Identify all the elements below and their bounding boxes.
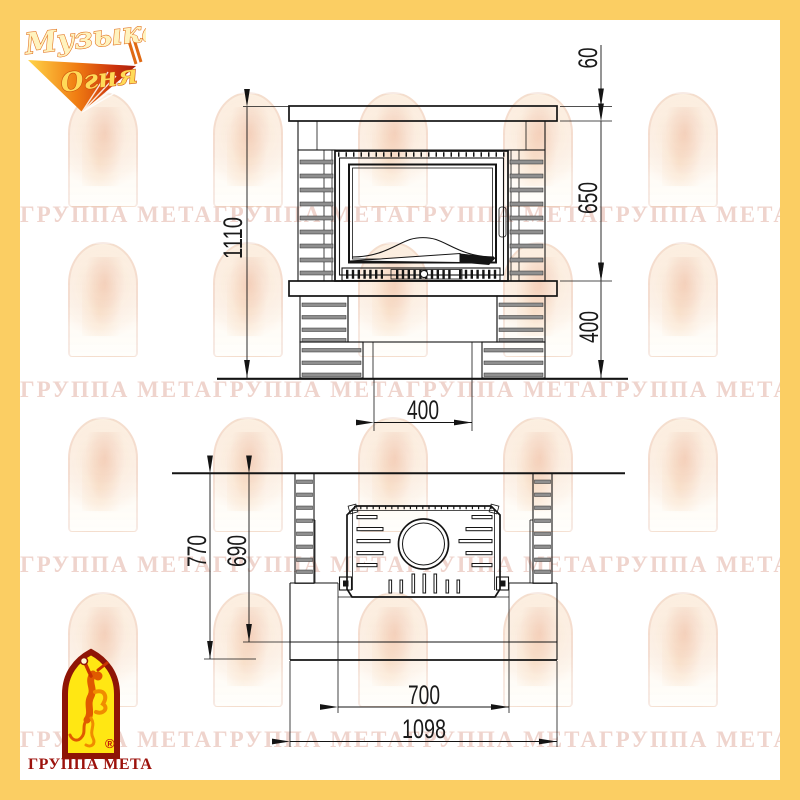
dim-total-width-label: 1098 (402, 714, 446, 744)
dim-niche-width-label: 400 (407, 395, 439, 425)
dim-total-height-label: 1110 (218, 217, 248, 259)
registered-mark: ® (105, 736, 115, 751)
plan-view: 770 690 700 1098 (172, 473, 625, 747)
base-front (300, 296, 545, 378)
firebox-front (335, 151, 508, 281)
vent-grille (342, 268, 500, 281)
firebox-plan (340, 504, 509, 597)
glass-frame (349, 165, 496, 263)
dim-base-depth-label: 690 (222, 535, 252, 567)
gruppa-meta-logo: ® ГРУППА МЕТА (28, 646, 152, 780)
dim-base-height-label: 400 (574, 311, 604, 343)
dim-shelf-height-label: 60 (573, 48, 603, 69)
dim-front-width-label: 700 (408, 680, 440, 710)
flue-collar (399, 519, 449, 569)
hearth-shelf (289, 281, 557, 296)
dim-opening-height-label: 650 (573, 182, 603, 214)
front-louvres (389, 574, 460, 593)
logo-line1: Музыка (22, 20, 146, 61)
catalog-page: ГРУППА МЕТАГРУППА МЕТАГРУППА МЕТАГРУППА … (0, 0, 800, 800)
frieze (298, 121, 545, 150)
muzyka-ognya-logo: Музыка Огня (20, 20, 146, 116)
door-handle (499, 207, 506, 237)
gruppa-meta-caption: ГРУППА МЕТА (28, 756, 152, 774)
dim-total-depth-label: 770 (182, 535, 212, 567)
base-plan (290, 583, 557, 660)
front-view: 1110 60 650 400 400 (217, 45, 628, 431)
plan-dimensions: 770 690 700 1098 (182, 474, 557, 748)
mantel-shelf (289, 106, 557, 121)
air-deflector-curve (352, 238, 494, 257)
thermostat-knob (420, 270, 427, 277)
glass (353, 168, 493, 259)
